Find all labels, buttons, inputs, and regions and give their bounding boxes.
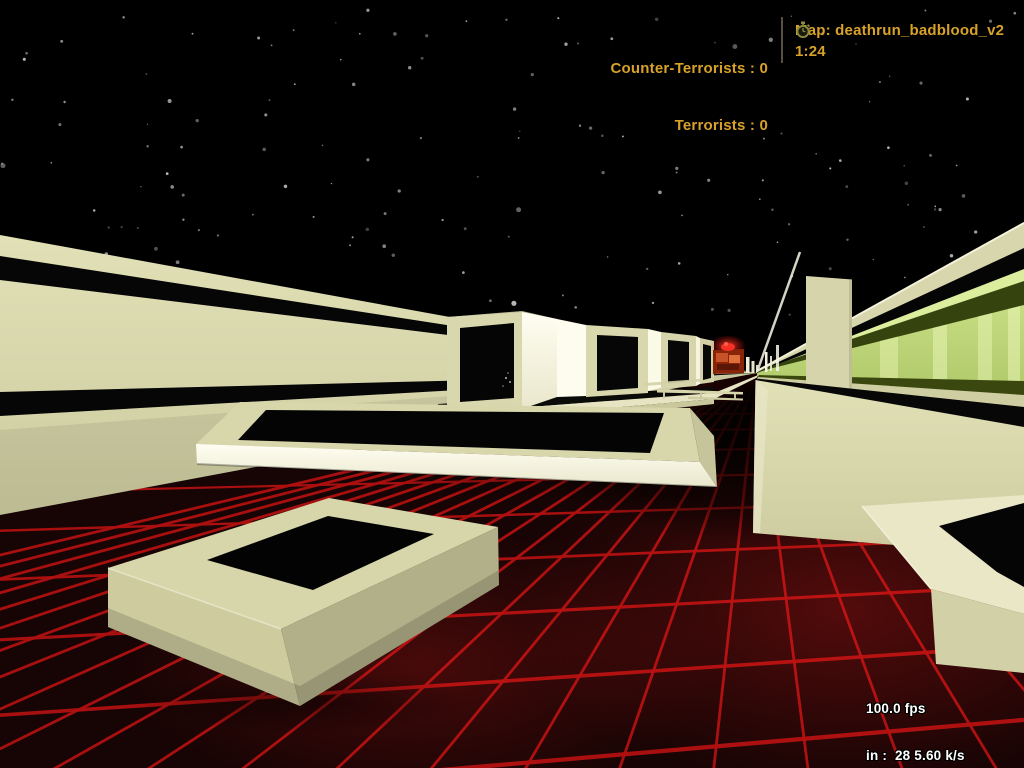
distant-red-sign	[710, 335, 746, 374]
hud-divider	[781, 17, 783, 63]
monitor-screen	[460, 323, 514, 402]
map-panel: Map: deathrun_badblood_v2 1:24	[795, 21, 1004, 61]
netgraph: 100.0 fps in : 28 5.60 k/s out: 19 5.51 …	[866, 669, 974, 768]
ct-score-label: Counter-Terrorists : 0	[611, 59, 768, 78]
net-in-readout: in : 28 5.60 k/s	[866, 748, 974, 764]
monitor-screen	[668, 340, 689, 383]
monitor-screen	[597, 335, 638, 391]
game-viewport[interactable]: Counter-Terrorists : 0 Terrorists : 0 Ma…	[0, 0, 1024, 768]
timer-value: 1:24	[795, 42, 826, 61]
monitor-box-1	[447, 311, 557, 413]
map-name-label: Map: deathrun_badblood_v2	[795, 21, 1004, 40]
stopwatch-icon	[795, 21, 811, 39]
scene-3d	[0, 0, 1024, 768]
scoreboard: Counter-Terrorists : 0 Terrorists : 0	[611, 21, 768, 154]
t-score-label: Terrorists : 0	[611, 116, 768, 135]
fps-readout: 100.0 fps	[866, 701, 974, 717]
round-timer: 1:24	[795, 42, 1004, 61]
monitor-screen	[703, 344, 711, 380]
monitor-box-2	[557, 319, 648, 397]
